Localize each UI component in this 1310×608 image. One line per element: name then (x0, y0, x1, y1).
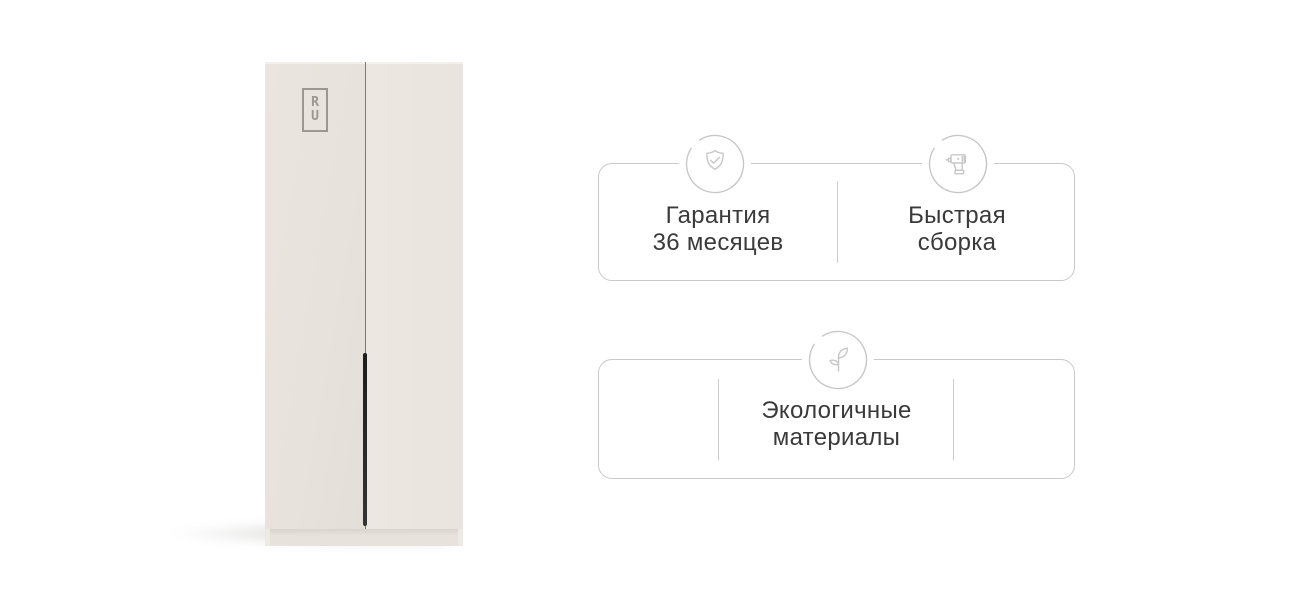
sprout-icon (802, 324, 874, 396)
feature-assembly-line1: Быстрая (838, 202, 1076, 229)
shield-check-icon (679, 128, 751, 200)
brand-logo: R U (302, 88, 328, 132)
feature-eco-line1: Экологичные (599, 397, 1074, 424)
wardrobe-product-image: R U (265, 62, 463, 546)
features-card-eco: Экологичные материалы (598, 359, 1075, 479)
features-card-warranty-assembly: Гарантия 36 месяцев Быстрая сборка (598, 163, 1075, 281)
wardrobe-plinth (270, 529, 458, 546)
feature-assembly-line2: сборка (838, 229, 1076, 256)
wardrobe-right-door (366, 62, 463, 529)
feature-warranty-line1: Гарантия (599, 202, 837, 229)
feature-assembly: Быстрая сборка (838, 202, 1076, 256)
drill-icon (922, 128, 994, 200)
feature-eco: Экологичные материалы (599, 397, 1074, 451)
feature-warranty-line2: 36 месяцев (599, 229, 837, 256)
product-features-section: R U (0, 0, 1310, 608)
wardrobe-handle (363, 353, 367, 526)
wardrobe-left-door (265, 62, 365, 529)
brand-logo-letter-bottom: U (311, 110, 319, 124)
brand-logo-letter-top: R (311, 96, 319, 110)
feature-warranty: Гарантия 36 месяцев (599, 202, 837, 256)
feature-eco-line2: материалы (599, 424, 1074, 451)
